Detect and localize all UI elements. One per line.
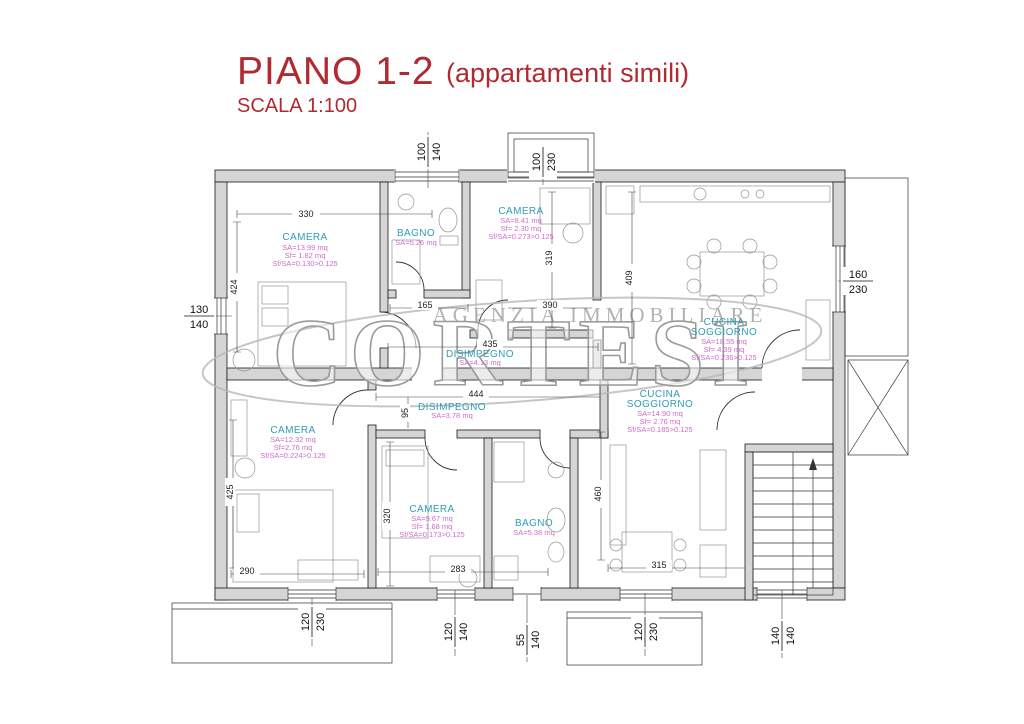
room-disimpegno-bottom: DISIMPEGNO SA=3.78 mq	[418, 402, 486, 420]
opening-height: 230	[849, 284, 867, 296]
watermark-name-text: CORTESI	[273, 299, 758, 406]
opening-height: 230	[315, 613, 327, 631]
dim-319: 319	[544, 250, 554, 265]
room-sa: SA=3.78 mq	[431, 411, 472, 420]
opening-label-160-230: 160 230	[841, 267, 875, 296]
room-ratio: Sf/SA=0.130>0.125	[272, 259, 337, 268]
opening-label-b4: 120 230	[631, 615, 660, 649]
opening-width: 100	[531, 153, 543, 171]
dim-409: 409	[624, 270, 634, 285]
dim-320: 320	[382, 508, 392, 523]
room-name: CAMERA	[282, 232, 327, 243]
room-bagno-top: BAGNO SA=5.26 mq	[395, 228, 436, 247]
room-sa: SA=4.13 mq	[459, 358, 500, 367]
floorplan-drawing: PIANO 1-2 (appartamenti simili) SCALA 1:…	[0, 0, 1024, 724]
shaft-x-box	[848, 360, 908, 455]
opening-width: 120	[443, 623, 455, 641]
opening-height: 140	[530, 631, 542, 649]
opening-width: 120	[633, 623, 645, 641]
dim-390: 390	[542, 300, 557, 310]
room-ratio: Sf/SA=0.185>0.125	[627, 425, 692, 434]
page-subtitle: (appartamenti simili)	[446, 58, 689, 88]
dim-283: 283	[450, 564, 465, 574]
title-block: PIANO 1-2 (appartamenti simili) SCALA 1:…	[237, 50, 689, 117]
opening-width: 160	[849, 269, 867, 281]
dim-165: 165	[417, 300, 432, 310]
floorplan-page: PIANO 1-2 (appartamenti simili) SCALA 1:…	[0, 0, 1024, 724]
dim-425: 425	[225, 484, 235, 499]
opening-label-130-140: 130 140	[182, 302, 216, 331]
opening-height: 140	[785, 627, 797, 645]
opening-label-b1: 120 230	[298, 605, 327, 639]
room-camera-top-center: CAMERA SA=8.41 mq Sf= 2.30 mq Sf/SA=0.27…	[488, 206, 553, 241]
room-ratio: Sf/SA=0.273>0.125	[488, 232, 553, 241]
dim-444: 444	[468, 389, 483, 399]
dim-460: 460	[593, 486, 603, 501]
opening-height: 230	[648, 623, 660, 641]
page-title: PIANO 1-2	[237, 50, 435, 93]
opening-height: 230	[546, 153, 558, 171]
dim-330: 330	[298, 209, 313, 219]
room-camera-top-left: CAMERA SA=13.99 mq Sf= 1.82 mq Sf/SA=0.1…	[272, 232, 337, 268]
room-bagno-bottom: BAGNO SA=5.38 mq	[513, 518, 554, 537]
opening-width: 140	[770, 627, 782, 645]
room-sa: SA=5.26 mq	[395, 238, 436, 247]
furniture-bagno-bottom	[494, 442, 565, 580]
room-ratio: Sf/SA=0.224>0.125	[260, 451, 325, 460]
opening-width: 130	[190, 304, 208, 316]
opening-label-100-230: 100 230	[529, 145, 558, 179]
room-sa: SA=5.38 mq	[513, 528, 554, 537]
opening-label-b3: 55 140	[513, 623, 542, 657]
dim-435: 435	[482, 339, 497, 349]
opening-height: 140	[431, 143, 443, 161]
room-ratio: Sf/SA=0.236>0.125	[691, 353, 756, 362]
room-ratio: Sf/SA=0.173>0.125	[399, 530, 464, 539]
dim-315: 315	[651, 560, 666, 570]
dim-290: 290	[239, 566, 254, 576]
room-camera-bottom-center: CAMERA SA=9.67 mq Sf= 1.68 mq Sf/SA=0.17…	[399, 504, 464, 539]
furniture-cucina-bottom	[610, 445, 726, 577]
dim-424: 424	[229, 279, 239, 294]
scale-label: SCALA 1:100	[237, 95, 357, 117]
opening-label-100-140: 100 140	[414, 135, 443, 169]
dim-95: 95	[400, 408, 410, 418]
opening-width: 55	[515, 634, 527, 646]
room-camera-bottom-left: CAMERA SA=12.32 mq Sf=2.76 mq Sf/SA=0.22…	[260, 425, 325, 460]
balconies	[172, 603, 702, 665]
opening-width: 100	[416, 143, 428, 161]
opening-height: 140	[458, 623, 470, 641]
opening-label-b5: 140 140	[768, 619, 797, 653]
staircase	[753, 452, 833, 595]
opening-label-b2: 120 140	[441, 615, 470, 649]
opening-height: 140	[190, 319, 208, 331]
opening-width: 120	[300, 613, 312, 631]
